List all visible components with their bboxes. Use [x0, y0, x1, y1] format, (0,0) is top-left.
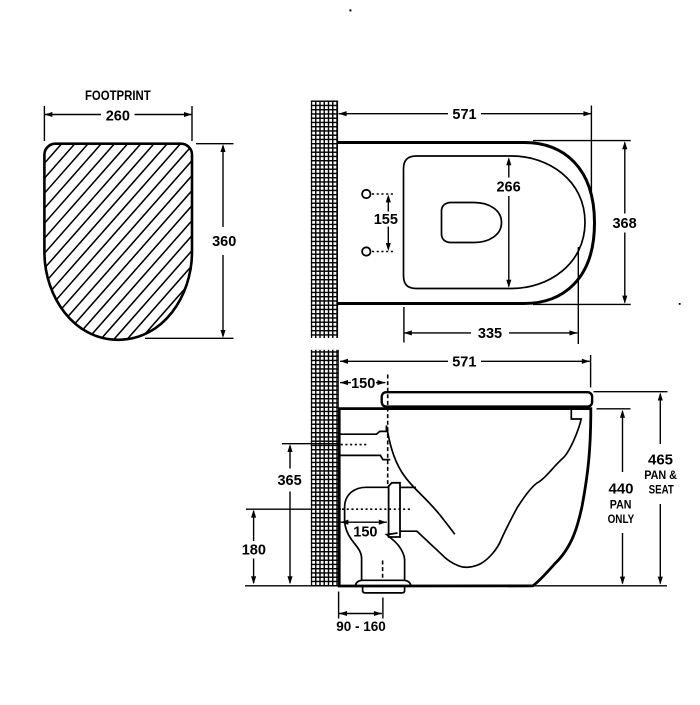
svg-text:FOOTPRINT: FOOTPRINT — [85, 88, 151, 103]
svg-text:PAN: PAN — [610, 499, 632, 512]
svg-text:368: 368 — [612, 216, 636, 232]
svg-text:365: 365 — [277, 473, 301, 489]
svg-text:571: 571 — [452, 355, 476, 371]
svg-text:335: 335 — [478, 326, 502, 342]
svg-text:360: 360 — [212, 234, 236, 250]
svg-text:180: 180 — [242, 543, 266, 559]
svg-text:266: 266 — [496, 180, 520, 196]
svg-text:440: 440 — [608, 481, 633, 498]
svg-text:150: 150 — [353, 525, 377, 541]
svg-text:465: 465 — [648, 452, 673, 469]
svg-text:571: 571 — [452, 107, 476, 123]
svg-text:260: 260 — [106, 109, 130, 125]
svg-text:155: 155 — [374, 212, 398, 228]
svg-text:90 - 160: 90 - 160 — [336, 619, 386, 634]
svg-text:150: 150 — [351, 376, 375, 392]
svg-text:SEAT: SEAT — [649, 484, 674, 497]
svg-text:ONLY: ONLY — [608, 513, 635, 526]
svg-text:PAN &: PAN & — [644, 470, 677, 483]
